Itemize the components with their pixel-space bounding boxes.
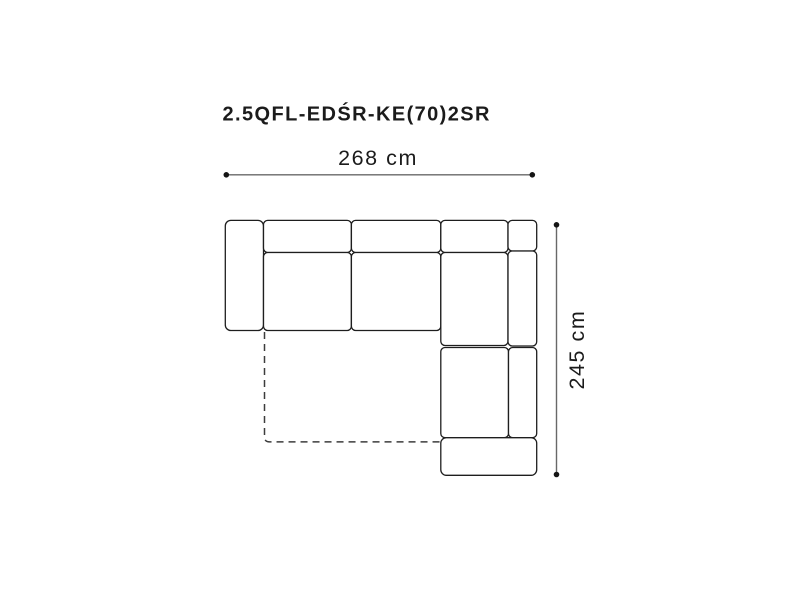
svg-text:245 cm: 245 cm: [565, 310, 589, 390]
svg-text:268 cm: 268 cm: [338, 146, 418, 170]
svg-text:2.5QFL-EDŚR-KE(70)2SR: 2.5QFL-EDŚR-KE(70)2SR: [223, 102, 491, 126]
